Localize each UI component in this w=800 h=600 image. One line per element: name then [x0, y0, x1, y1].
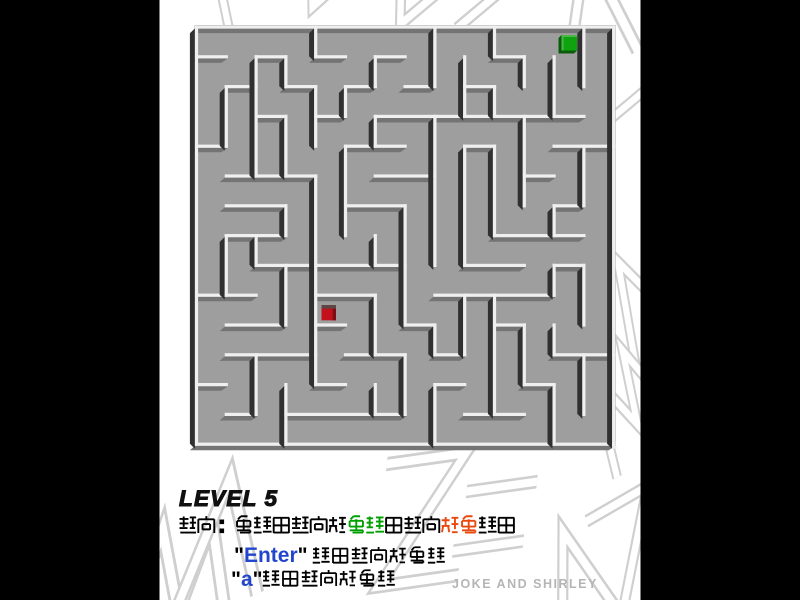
svg-text:"Enter": "Enter" — [234, 544, 308, 567]
svg-text:LEVEL 5: LEVEL 5 — [179, 486, 278, 511]
svg-text:JOKE AND SHIRLEY: JOKE AND SHIRLEY — [452, 577, 598, 591]
svg-text:"a": "a" — [231, 568, 263, 591]
